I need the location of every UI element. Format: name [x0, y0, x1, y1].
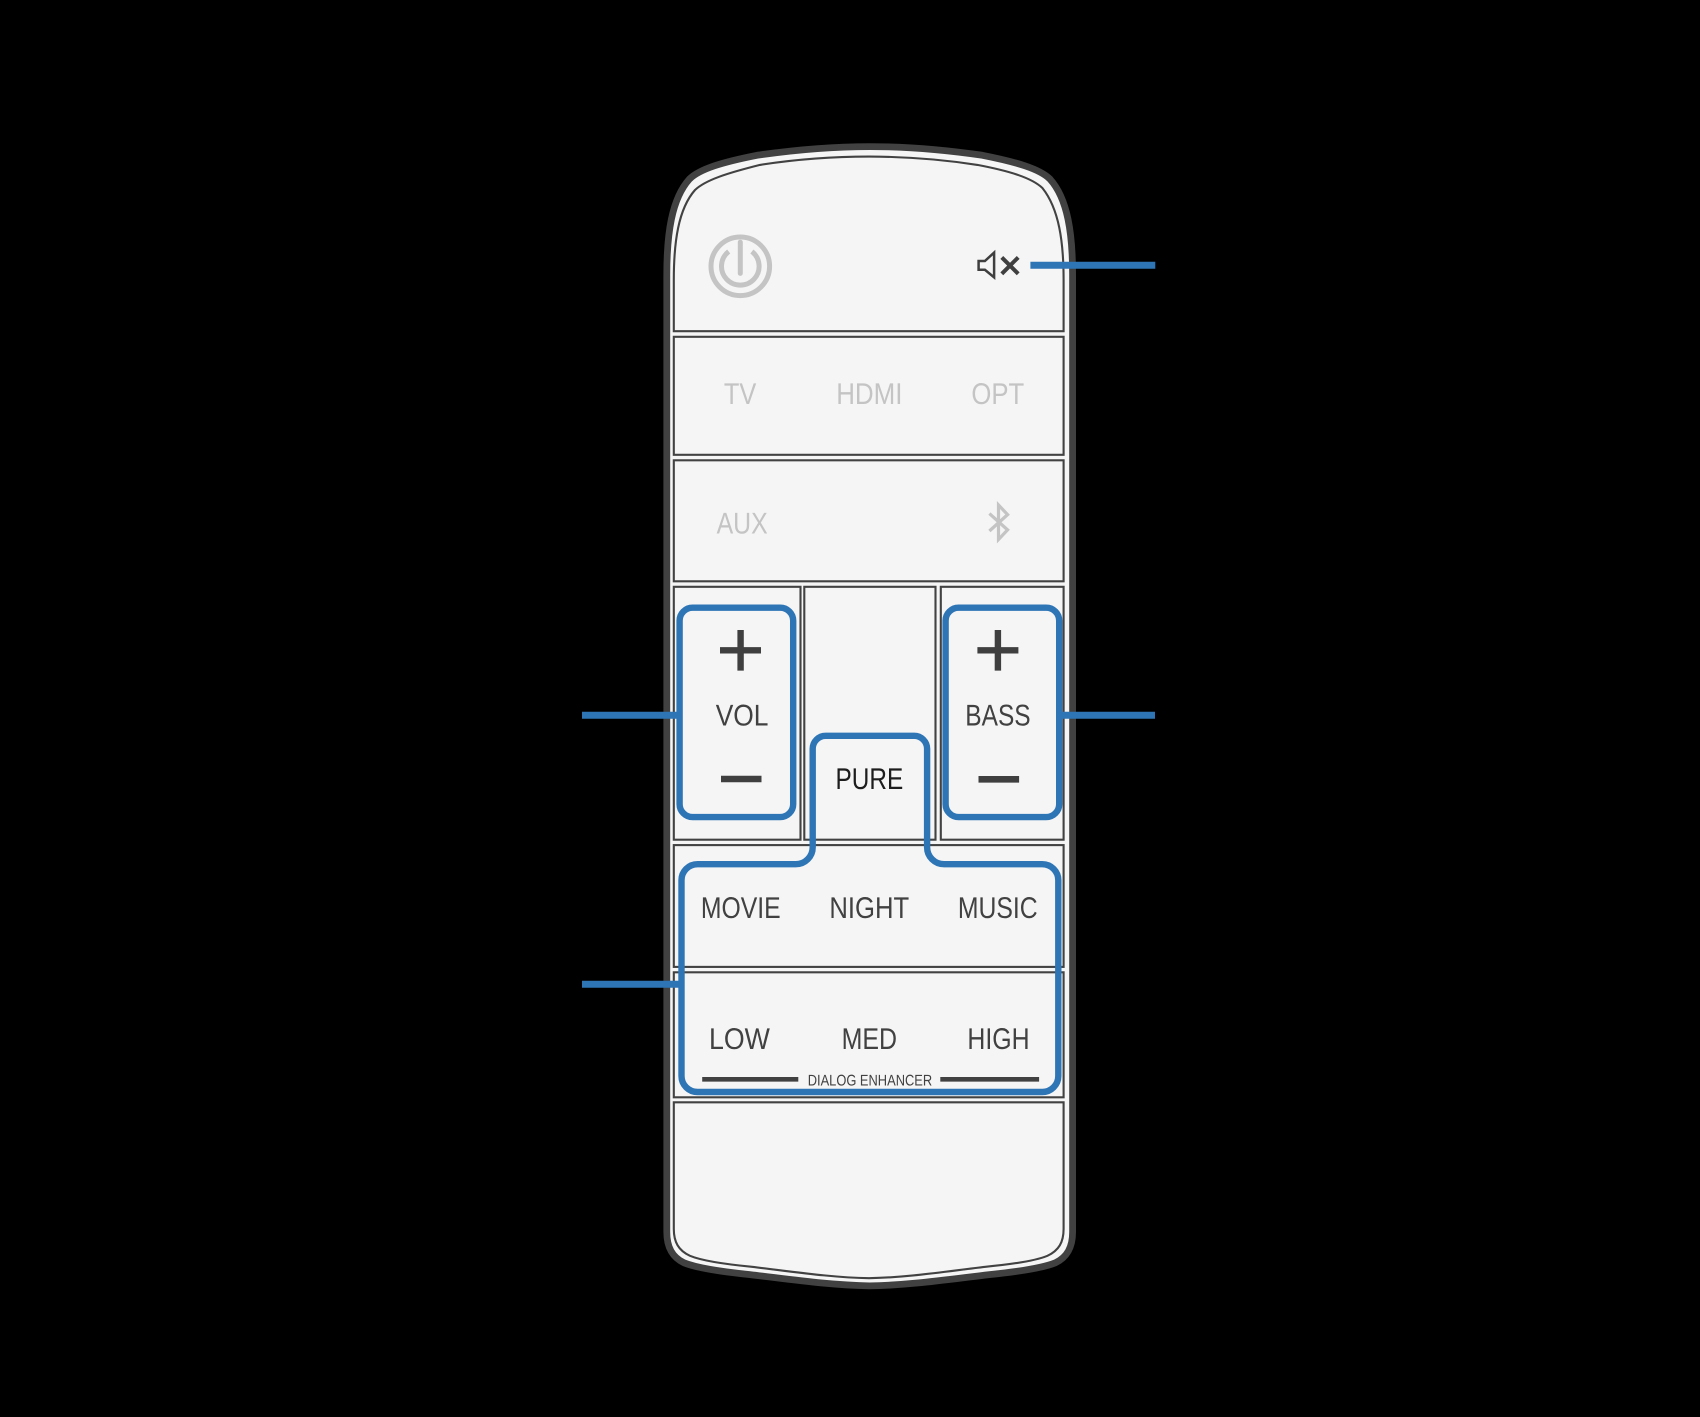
svg-text:MUSIC: MUSIC — [958, 892, 1038, 925]
svg-text:MOVIE: MOVIE — [701, 892, 781, 925]
svg-text:MED: MED — [842, 1023, 897, 1056]
svg-text:BASS: BASS — [965, 700, 1030, 733]
svg-text:OPT: OPT — [971, 378, 1024, 411]
svg-text:PURE: PURE — [836, 763, 904, 796]
svg-text:DIALOG ENHANCER: DIALOG ENHANCER — [808, 1072, 933, 1089]
svg-text:TV: TV — [724, 378, 756, 411]
svg-text:HDMI: HDMI — [836, 378, 902, 411]
svg-text:NIGHT: NIGHT — [829, 892, 909, 925]
svg-text:LOW: LOW — [709, 1023, 771, 1056]
svg-text:VOL: VOL — [716, 700, 769, 733]
svg-text:HIGH: HIGH — [967, 1023, 1029, 1056]
svg-text:AUX: AUX — [717, 508, 768, 541]
